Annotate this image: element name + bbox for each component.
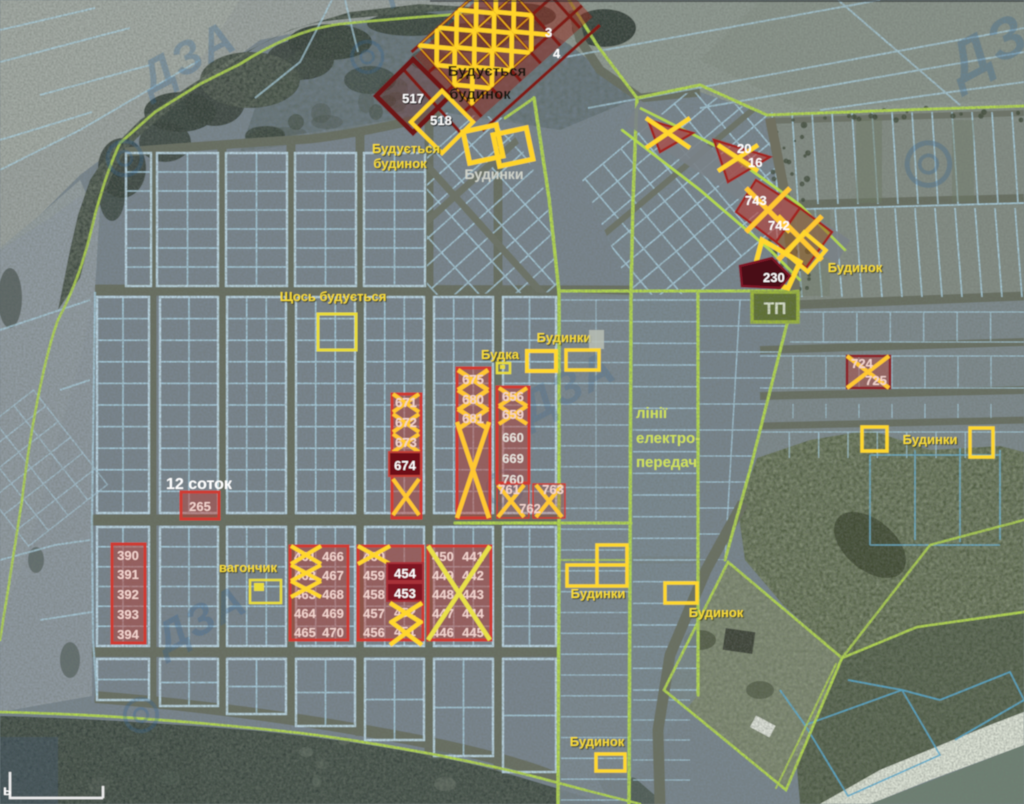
svg-text:лінії: лінії xyxy=(636,405,668,422)
svg-text:656: 656 xyxy=(502,389,524,404)
svg-text:468: 468 xyxy=(322,587,344,602)
svg-text:передач: передач xyxy=(636,454,697,471)
svg-text:Будка: Будка xyxy=(481,347,520,362)
svg-text:ь: ь xyxy=(3,782,12,798)
svg-text:20: 20 xyxy=(737,141,751,156)
svg-text:454: 454 xyxy=(394,566,416,581)
svg-text:Будується: Будується xyxy=(448,63,527,80)
svg-text:681: 681 xyxy=(462,411,484,426)
svg-text:673: 673 xyxy=(395,435,417,450)
svg-text:390: 390 xyxy=(117,548,139,563)
svg-text:3: 3 xyxy=(545,25,552,40)
svg-text:458: 458 xyxy=(363,587,385,602)
svg-text:469: 469 xyxy=(322,606,344,621)
svg-text:393: 393 xyxy=(117,607,139,622)
svg-text:464: 464 xyxy=(294,606,316,621)
svg-text:763: 763 xyxy=(542,482,564,497)
svg-text:762: 762 xyxy=(519,501,541,516)
svg-text:724: 724 xyxy=(851,356,873,371)
svg-text:672: 672 xyxy=(395,415,417,430)
svg-text:459: 459 xyxy=(363,568,385,583)
svg-text:Щось будується: Щось будується xyxy=(280,289,387,304)
svg-text:517: 517 xyxy=(402,91,424,106)
svg-text:будинок: будинок xyxy=(373,156,427,171)
svg-text:761: 761 xyxy=(498,482,520,497)
svg-text:465: 465 xyxy=(294,625,316,640)
svg-text:Будинок: Будинок xyxy=(570,734,625,749)
svg-text:659: 659 xyxy=(502,407,524,422)
svg-text:448: 448 xyxy=(432,587,454,602)
svg-text:Будинки: Будинки xyxy=(465,166,524,182)
svg-text:671: 671 xyxy=(395,395,417,410)
svg-text:669: 669 xyxy=(502,451,524,466)
svg-text:456: 456 xyxy=(363,625,385,640)
svg-text:Будинок: Будинок xyxy=(828,260,883,275)
svg-text:470: 470 xyxy=(322,625,344,640)
svg-text:Будинки: Будинки xyxy=(903,432,958,447)
svg-text:660: 660 xyxy=(502,430,524,445)
svg-text:680: 680 xyxy=(462,392,484,407)
svg-text:394: 394 xyxy=(117,627,139,642)
svg-text:391: 391 xyxy=(117,567,139,582)
svg-text:466: 466 xyxy=(322,549,344,564)
svg-text:Будинок: Будинок xyxy=(689,605,744,620)
svg-text:12 соток: 12 соток xyxy=(166,476,233,493)
svg-text:Будується: Будується xyxy=(372,141,440,156)
svg-text:392: 392 xyxy=(117,587,139,602)
svg-text:453: 453 xyxy=(394,586,416,601)
svg-text:будинок: будинок xyxy=(449,86,511,103)
svg-text:16: 16 xyxy=(748,155,762,170)
svg-text:Будинки: Будинки xyxy=(571,586,626,601)
svg-text:електро-: електро- xyxy=(636,430,700,447)
svg-text:725: 725 xyxy=(865,373,887,388)
svg-text:467: 467 xyxy=(322,568,344,583)
svg-text:вагончик: вагончик xyxy=(219,560,278,575)
svg-text:675: 675 xyxy=(462,372,484,387)
svg-text:Будинки: Будинки xyxy=(537,330,592,345)
svg-text:230: 230 xyxy=(763,270,785,285)
svg-text:742: 742 xyxy=(768,218,790,233)
svg-text:674: 674 xyxy=(394,458,416,473)
svg-text:743: 743 xyxy=(745,193,767,208)
svg-text:265: 265 xyxy=(189,499,211,514)
svg-text:4: 4 xyxy=(553,46,561,61)
svg-text:457: 457 xyxy=(363,606,385,621)
svg-text:518: 518 xyxy=(430,113,452,128)
